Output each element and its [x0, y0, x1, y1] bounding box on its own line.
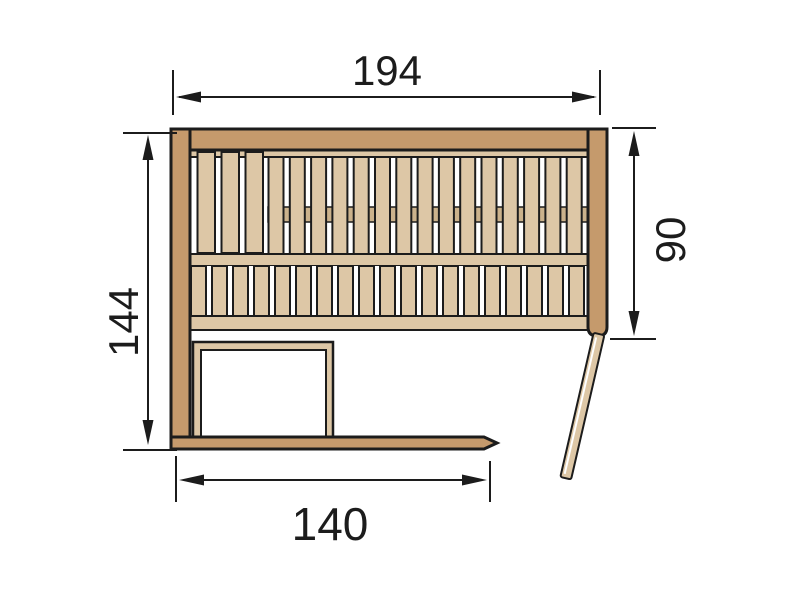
upper-bench-slat	[332, 157, 347, 254]
upper-bench-wide-slat	[198, 152, 216, 253]
dimension-bottom: 140	[176, 456, 490, 550]
lower-bench-front-rail	[190, 316, 588, 330]
dimension-left-arrow-top	[143, 135, 154, 160]
front-wall	[171, 437, 497, 449]
upper-bench	[190, 149, 588, 266]
lower-bench-slat	[506, 266, 521, 316]
upper-bench-slat	[460, 157, 475, 254]
upper-bench-slat	[375, 157, 390, 254]
upper-bench-wide-slat	[222, 152, 240, 253]
dimension-label-right: 90	[647, 217, 694, 264]
upper-bench-slat	[290, 157, 305, 254]
top-wall	[171, 129, 607, 150]
left-wall	[171, 129, 190, 449]
dimension-label-top: 194	[352, 47, 422, 94]
right-wall	[588, 129, 607, 336]
lower-bench-slat	[443, 266, 458, 316]
lower-bench-slat	[212, 266, 227, 316]
floor-plan-svg: 194 144 90 140	[0, 0, 800, 600]
upper-bench-slat	[311, 157, 326, 254]
dimension-label-bottom: 140	[292, 498, 369, 550]
dimension-right: 90	[610, 128, 694, 339]
upper-bench-slat	[503, 157, 518, 254]
upper-bench-wide-slat	[246, 152, 264, 253]
lower-bench-slat	[317, 266, 332, 316]
upper-bench-slat	[567, 157, 582, 254]
lower-bench	[190, 266, 588, 330]
upper-bench-slats	[269, 157, 582, 254]
dimension-top-arrow-right	[572, 92, 597, 103]
upper-bench-slat	[396, 157, 411, 254]
dimension-top: 194	[173, 47, 600, 115]
door-leaf-stripe	[565, 337, 596, 473]
door	[560, 333, 604, 480]
lower-bench-slat	[233, 266, 248, 316]
lower-bench-slat	[422, 266, 437, 316]
door-leaf	[560, 333, 604, 480]
lower-bench-slat	[191, 266, 206, 316]
lower-bench-slat	[296, 266, 311, 316]
dimension-label-left: 144	[100, 287, 147, 357]
lower-bench-slat	[464, 266, 479, 316]
upper-bench-slat	[418, 157, 433, 254]
sauna-floor-plan: 194 144 90 140	[0, 0, 800, 600]
dimension-left-arrow-bottom	[143, 420, 154, 445]
upper-bench-slat	[269, 157, 284, 254]
under-bench-opening-inner	[201, 350, 326, 438]
lower-bench-slat	[548, 266, 563, 316]
upper-bench-slat	[354, 157, 369, 254]
lower-bench-slat	[485, 266, 500, 316]
upper-bench-slat	[545, 157, 560, 254]
upper-bench-slat	[439, 157, 454, 254]
upper-bench-wide-slats	[198, 152, 264, 253]
dimension-left: 144	[100, 133, 177, 450]
dimension-bottom-arrow-left	[179, 475, 204, 486]
lower-bench-slat	[527, 266, 542, 316]
upper-bench-slat	[482, 157, 497, 254]
dimension-bottom-arrow-right	[462, 475, 487, 486]
dimension-right-arrow-bottom	[629, 311, 640, 336]
under-bench-opening	[193, 342, 333, 438]
lower-bench-slat	[254, 266, 269, 316]
lower-bench-slat	[380, 266, 395, 316]
lower-bench-slat	[359, 266, 374, 316]
upper-bench-front-rail	[190, 254, 588, 266]
dimension-top-arrow-left	[176, 92, 201, 103]
dimension-right-arrow-top	[629, 131, 640, 156]
lower-bench-slat	[338, 266, 353, 316]
lower-bench-slat	[569, 266, 584, 316]
lower-bench-slat	[275, 266, 290, 316]
upper-bench-slat	[524, 157, 539, 254]
lower-bench-slat	[401, 266, 416, 316]
